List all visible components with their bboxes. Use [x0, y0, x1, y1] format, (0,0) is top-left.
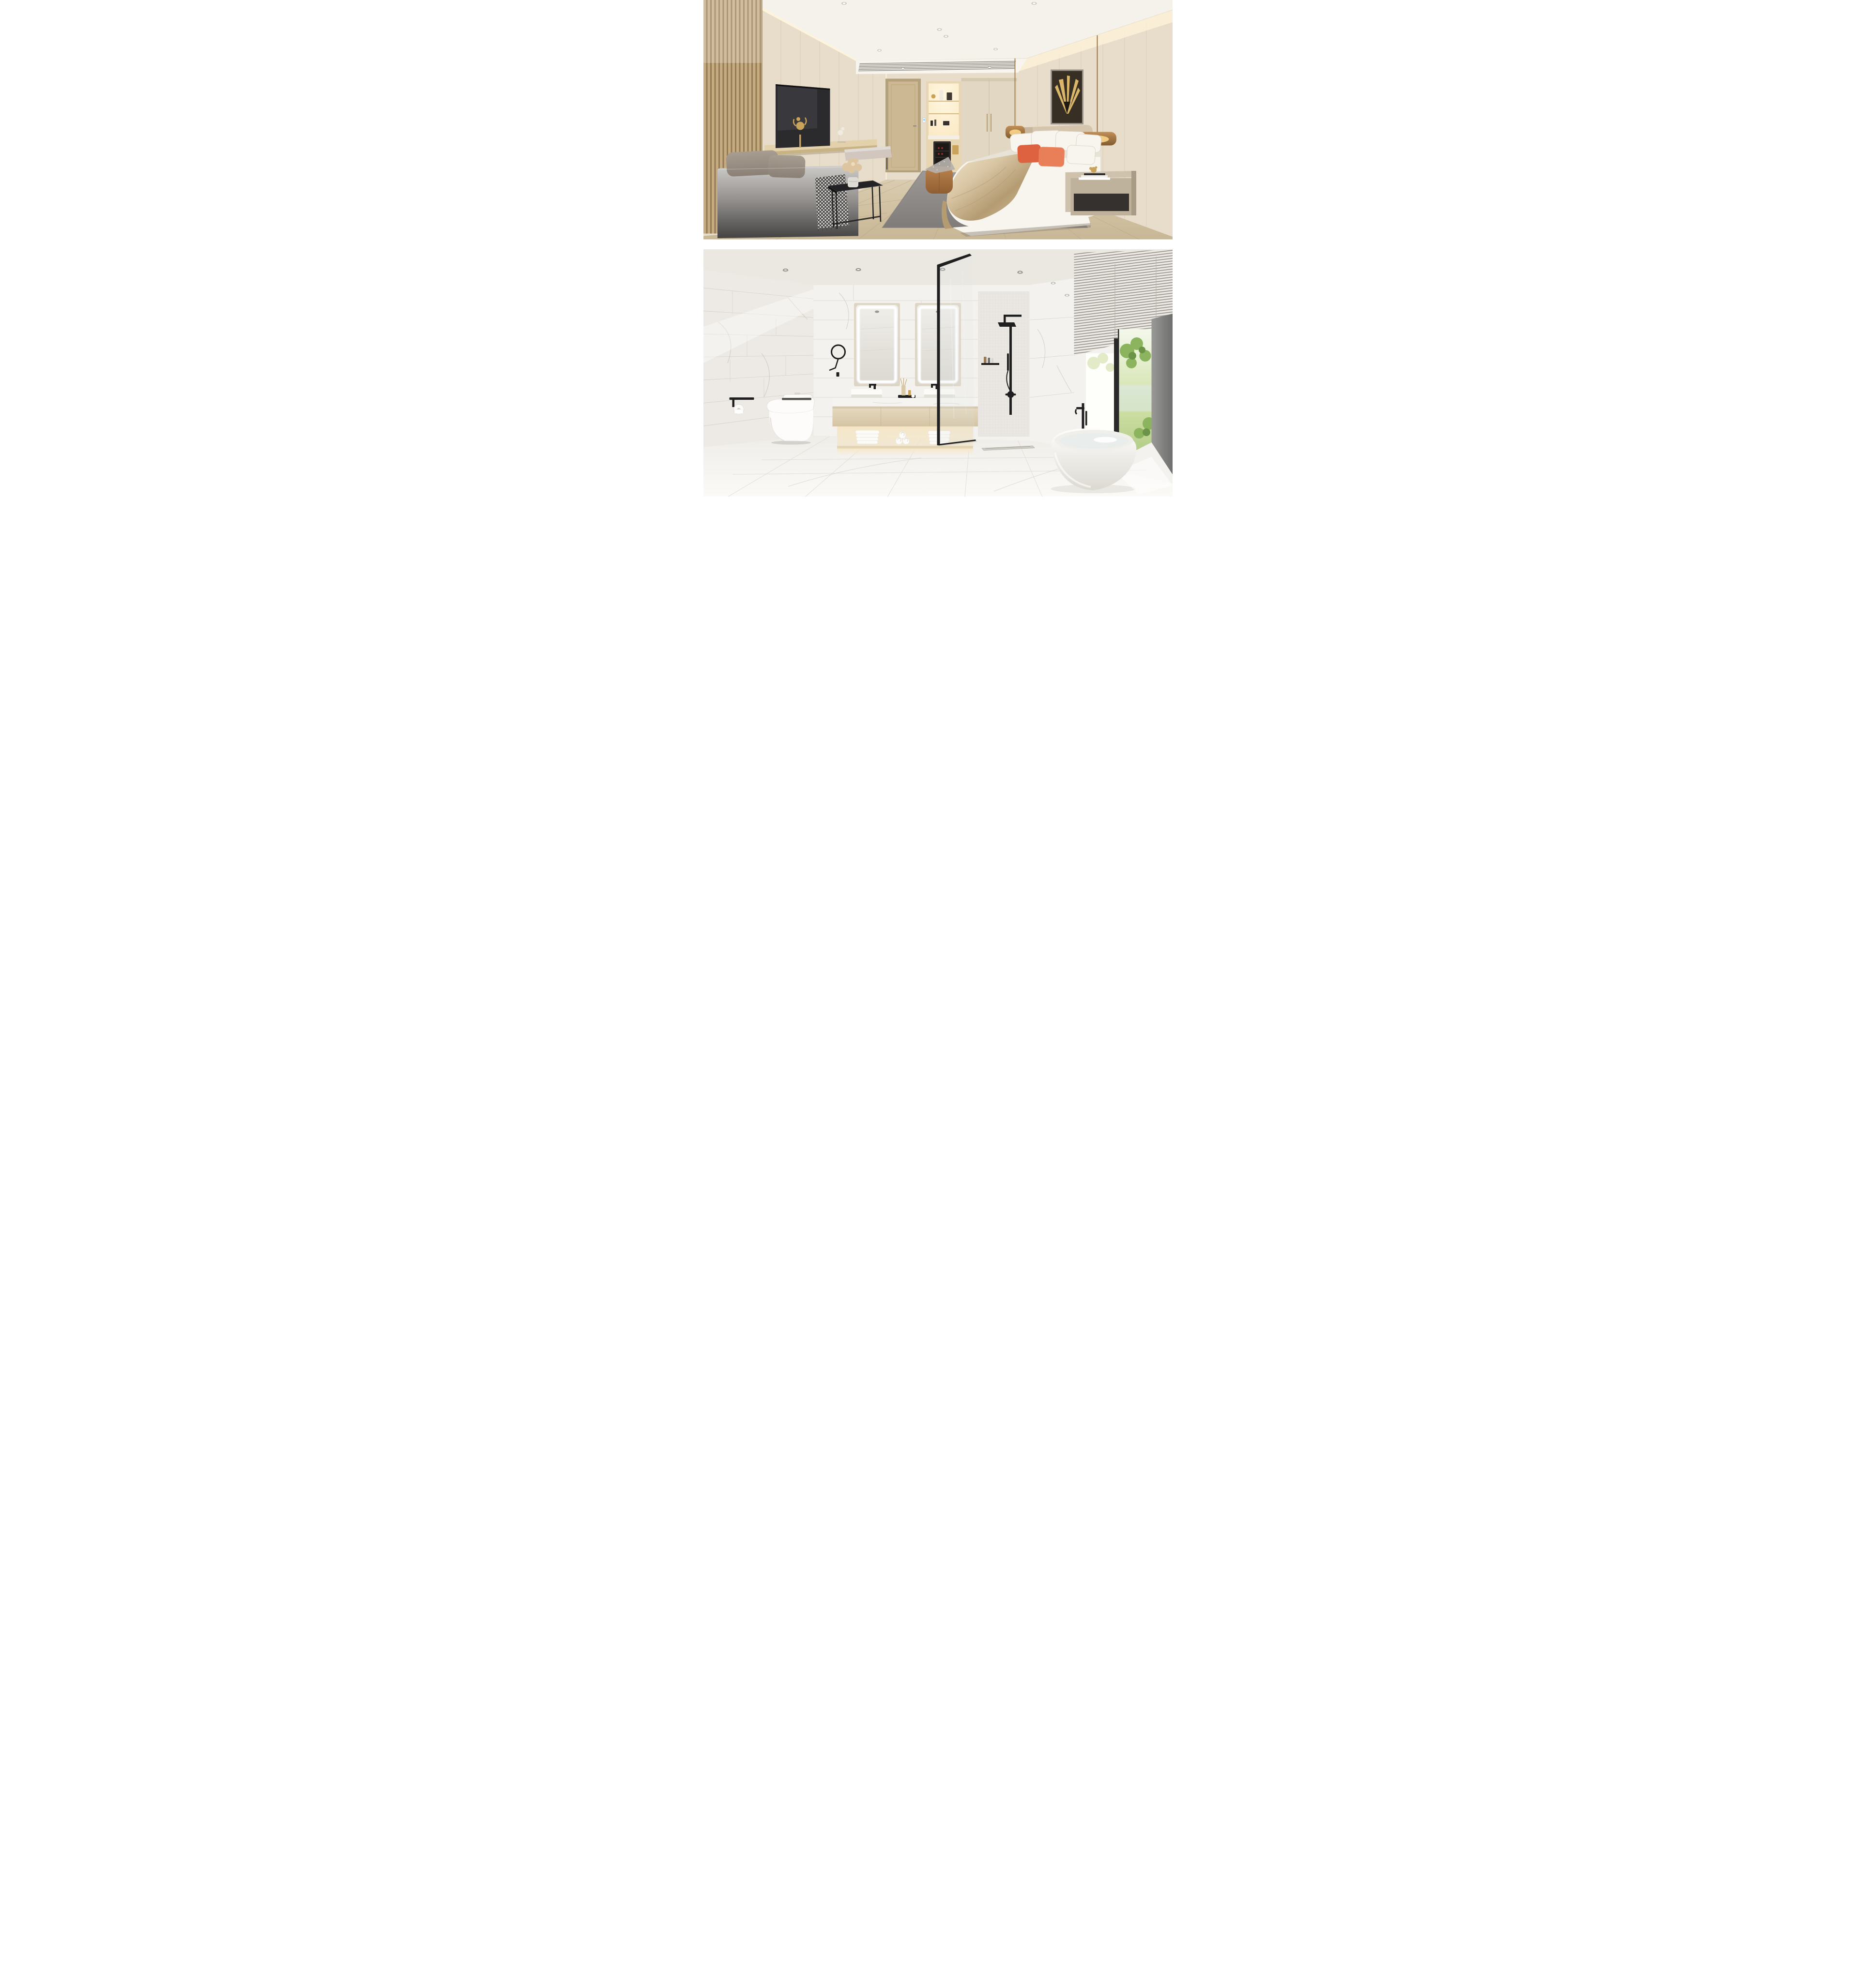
- minibar-niche: [926, 81, 961, 172]
- vase: [848, 177, 858, 187]
- wall-artwork: [1051, 70, 1083, 125]
- bedroom-render: [703, 0, 1173, 240]
- nightstand-open-shelf: [1074, 194, 1129, 211]
- vessel-sink-left: [851, 389, 882, 399]
- render-sheet: [703, 0, 1173, 497]
- folded-towels-left: [855, 430, 879, 444]
- orange-pillow-2: [1038, 147, 1065, 167]
- toilet-button: [794, 393, 800, 395]
- bathroom-render: [703, 249, 1173, 497]
- sheet-gap: [703, 240, 1173, 249]
- led-mirror-left: [854, 303, 900, 386]
- window-pier-marble: [1030, 285, 1074, 440]
- glass-partition: [937, 254, 977, 446]
- door-handle: [913, 125, 916, 127]
- television: [776, 84, 830, 148]
- nightstand: [1066, 167, 1137, 216]
- bed-pillows: [1010, 130, 1101, 167]
- entry-door: [885, 79, 926, 173]
- gold-box: [952, 145, 959, 154]
- seat-hinge-bar: [782, 398, 811, 400]
- orange-pillow-1: [1017, 144, 1041, 163]
